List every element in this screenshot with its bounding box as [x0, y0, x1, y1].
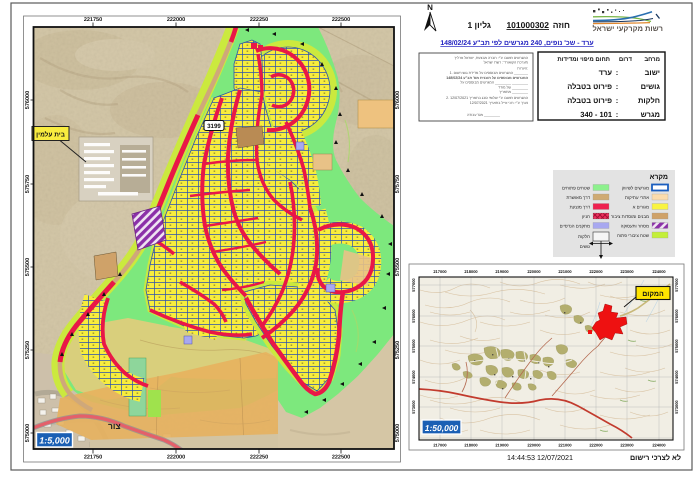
svg-text:574000: 574000: [411, 370, 416, 384]
svg-text:221000: 221000: [558, 443, 572, 448]
svg-text:575000: 575000: [674, 339, 679, 353]
svg-text:577000: 577000: [411, 278, 416, 292]
svg-text:בית עלמין: בית עלמין: [36, 131, 65, 139]
svg-text:224000: 224000: [652, 443, 666, 448]
svg-text:המגרשים מבוססים על תוכנית מס': המגרשים מבוססים על תוכנית מס' תב"ע 148/0…: [446, 76, 528, 80]
svg-text:צור: צור: [108, 421, 121, 431]
svg-text:575750: 575750: [395, 175, 401, 193]
svg-text:גליון 1: גליון 1: [467, 20, 491, 30]
svg-text:218000: 218000: [464, 269, 478, 274]
svg-text:מבנים ומוסדות ציבור: מבנים ומוסדות ציבור: [611, 214, 649, 219]
svg-text:ישוב: ישוב: [645, 68, 660, 77]
svg-text:575250: 575250: [25, 341, 31, 359]
svg-text:חוזה: חוזה: [553, 20, 570, 30]
svg-text:לא לצרכי רישום: לא לצרכי רישום: [630, 453, 681, 462]
svg-text:575000: 575000: [25, 424, 31, 442]
svg-text:של מודד ________: של מודד ________: [498, 85, 529, 89]
svg-text:218000: 218000: [464, 443, 478, 448]
svg-text:576000: 576000: [395, 91, 401, 109]
svg-text:מקרא: מקרא: [650, 174, 668, 181]
svg-text:221750: 221750: [84, 455, 102, 461]
svg-text:דרך מוצעת: דרך מוצעת: [570, 205, 591, 210]
svg-text:222500: 222500: [332, 455, 350, 461]
svg-text:N: N: [427, 3, 433, 12]
svg-text:תחום מיפוי ומדידות: תחום מיפוי ומדידות: [557, 57, 610, 63]
svg-text:מגרשים לשיווק: מגרשים לשיווק: [622, 186, 649, 191]
svg-text:המגרשים מבוססים על ________: המגרשים מבוססים על ________ ________: [460, 81, 529, 85]
svg-text:ערד: ערד: [599, 68, 613, 77]
svg-text:ערד - שכ' נופים, 240 מגרשים לפ: ערד - שכ' נופים, 240 מגרשים לפי תב"ע 148…: [440, 39, 593, 47]
svg-text:פירוט בטבלה: פירוט בטבלה: [567, 82, 612, 91]
svg-text:דרך מאושרת: דרך מאושרת: [566, 195, 590, 200]
svg-text:3199: 3199: [207, 123, 221, 130]
svg-text:דרום: דרום: [619, 57, 633, 63]
svg-text:575500: 575500: [25, 258, 31, 276]
svg-text:1:5,000: 1:5,000: [39, 436, 70, 446]
svg-text:575250: 575250: [395, 341, 401, 359]
svg-text:222000: 222000: [167, 17, 185, 23]
svg-text:1:50,000: 1:50,000: [425, 423, 459, 433]
svg-text:217000: 217000: [433, 443, 447, 448]
svg-text:רשות מקרקעי ישראל: רשות מקרקעי ישראל: [593, 24, 663, 33]
svg-text:222250: 222250: [250, 455, 268, 461]
svg-text:מס' עבודה ________: מס' עבודה ________: [467, 113, 501, 117]
svg-text:220000: 220000: [527, 443, 541, 448]
svg-text:221000: 221000: [558, 269, 572, 274]
svg-text:גושים: גושים: [641, 82, 661, 91]
svg-text:אתרי עתיקות: אתרי עתיקות: [625, 195, 649, 200]
svg-text:מגורים א: מגורים א: [633, 205, 649, 210]
svg-text:המגרשים חושבו ע"י: חברה מבצעת,: המגרשים חושבו ע"י: חברה מבצעת, ישראל ארל…: [454, 56, 528, 60]
svg-text::: :: [616, 110, 619, 119]
svg-text:219000: 219000: [495, 443, 509, 448]
svg-text:222500: 222500: [332, 17, 350, 23]
svg-text:221750: 221750: [84, 17, 102, 23]
svg-text:573000: 573000: [674, 400, 679, 414]
svg-text:מגרש: מגרש: [641, 110, 660, 119]
svg-text:המקום: המקום: [642, 291, 664, 298]
svg-text:חניון: חניון: [582, 214, 590, 219]
svg-text:222000: 222000: [589, 269, 603, 274]
svg-text:573000: 573000: [411, 400, 416, 414]
svg-text:פירוט בטבלה: פירוט בטבלה: [567, 96, 612, 105]
svg-text:223000: 223000: [620, 443, 634, 448]
svg-text:224000: 224000: [652, 269, 666, 274]
svg-text:223000: 223000: [620, 269, 634, 274]
svg-text:חלקות: חלקות: [638, 96, 660, 105]
svg-text:576000: 576000: [674, 309, 679, 323]
svg-text:מתקנים הנדסיים: מתקנים הנדסיים: [560, 224, 590, 229]
svg-text:מסחר ותעסוקה: מסחר ותעסוקה: [621, 224, 649, 229]
svg-text:575000: 575000: [411, 339, 416, 353]
svg-text:576000: 576000: [25, 91, 31, 109]
svg-text::: :: [616, 68, 619, 77]
svg-text:575750: 575750: [25, 175, 31, 193]
svg-text:574000: 574000: [674, 370, 679, 384]
svg-text:הערות:: הערות:: [517, 67, 528, 71]
svg-text:217000: 217000: [433, 269, 447, 274]
svg-text:219000: 219000: [495, 269, 509, 274]
svg-text::: :: [616, 82, 619, 91]
svg-text:מערכת הקואורד': רשת ישראל: מערכת הקואורד': רשת ישראל: [484, 61, 529, 65]
svg-text:575000: 575000: [395, 424, 401, 442]
svg-text:1. המגרשים מבוססים על מדידת גו: 1. המגרשים מבוססים על מדידת גוש רשום ___…: [450, 71, 529, 75]
svg-text:220000: 220000: [527, 269, 541, 274]
svg-text:מרחב: מרחב: [644, 57, 660, 63]
svg-text:חלקות: חלקות: [578, 234, 590, 239]
svg-text:222000: 222000: [589, 443, 603, 448]
svg-text::: :: [616, 96, 619, 105]
svg-text:101000302: 101000302: [506, 20, 549, 30]
svg-text:576000: 576000: [411, 309, 416, 323]
svg-text:222250: 222250: [250, 17, 268, 23]
svg-text:14:44:53 12/07/2021: 14:44:53 12/07/2021: [507, 453, 573, 462]
svg-text:נערך ע"י: רוני אייל בתאריך: נערך ע"י: רוני אייל בתאריך 12/07/2021: [470, 101, 529, 105]
svg-text:מתאריך ________: מתאריך ________: [499, 90, 529, 94]
svg-text:שטחים פתוחים: שטחים פתוחים: [562, 186, 591, 191]
svg-text:שטח ציבורי פתוח: שטח ציבורי פתוח: [617, 233, 650, 238]
svg-text:2. המגרשים חושבו ע"י שלומי סבג: 2. המגרשים חושבו ע"י שלומי סבג בתאריך 12…: [446, 96, 528, 100]
svg-text:340 - 101: 340 - 101: [580, 110, 612, 119]
svg-text:גושים: גושים: [580, 244, 590, 249]
svg-text:222000: 222000: [167, 455, 185, 461]
svg-text:577000: 577000: [674, 278, 679, 292]
svg-text:575500: 575500: [395, 258, 401, 276]
